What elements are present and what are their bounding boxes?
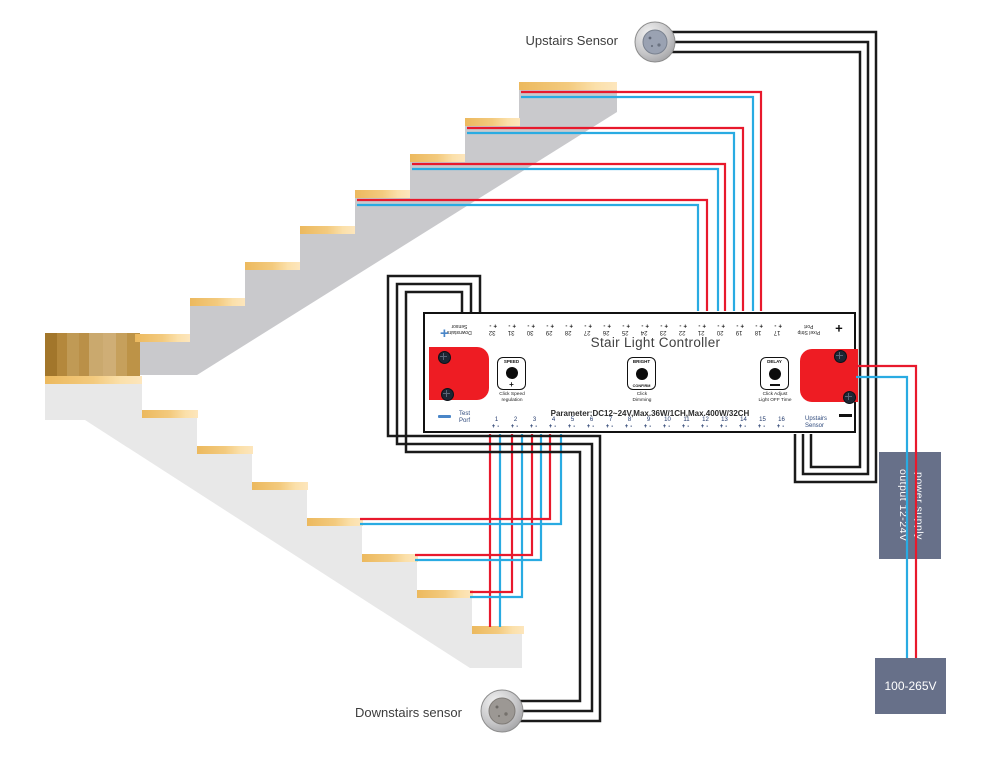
terminal-cell: 28+- [559, 321, 578, 335]
wire-lower-step2-negative [470, 434, 522, 597]
bottom-terminal-strip: 1+-2+-3+-4+-5+-6+-7+-8+-9+-10+-11+-12+-1… [487, 417, 791, 431]
terminal-number: 24 [635, 328, 654, 335]
terminal-polarity-marks: +- [540, 321, 559, 328]
terminal-number: 17 [768, 328, 787, 335]
terminal-number: 32 [483, 328, 502, 335]
terminal-cell: 29+- [540, 321, 559, 335]
terminal-number: 26 [597, 328, 616, 335]
terminal-polarity-marks: +- [753, 424, 772, 431]
stair-tread [519, 82, 617, 90]
upstairs-sensor-label: Upstairs Sensor [500, 33, 618, 48]
terminal-cell: 20+- [711, 321, 730, 335]
terminal-cell: 19+- [730, 321, 749, 335]
terminal-number: 15 [753, 417, 772, 424]
screw-icon [843, 391, 856, 404]
terminal-number: 3 [525, 417, 544, 424]
stair-tread [355, 190, 410, 198]
terminal-polarity-marks: +- [734, 424, 753, 431]
terminal-polarity-marks: +- [563, 424, 582, 431]
terminal-number: 28 [559, 328, 578, 335]
downstairs-sensor-port-label: Downstairs Sensor [447, 323, 472, 335]
top-terminal-cells: 17+-18+-19+-20+-21+-22+-23+-24+-25+-26+-… [483, 321, 787, 335]
delay-knob-icon [769, 368, 781, 380]
terminal-cell: 3+- [525, 417, 544, 431]
delay-minus-mark [770, 384, 780, 387]
terminal-polarity-marks: +- [582, 424, 601, 431]
terminal-cell: 11+- [677, 417, 696, 431]
terminal-number: 2 [506, 417, 525, 424]
terminal-cell: 6+- [582, 417, 601, 431]
terminal-polarity-marks: +- [521, 321, 540, 328]
terminal-cell: 10+- [658, 417, 677, 431]
terminal-cell: 30+- [521, 321, 540, 335]
terminal-cell: 17+- [768, 321, 787, 335]
screw-icon [438, 351, 451, 364]
terminal-number: 25 [616, 328, 635, 335]
terminal-polarity-marks: +- [711, 321, 730, 328]
speed-button: SPEED + [497, 357, 526, 390]
terminal-polarity-marks: +- [483, 321, 502, 328]
stair-tread [362, 554, 418, 562]
terminal-number: 30 [521, 328, 540, 335]
downstairs-sensor [481, 690, 523, 732]
terminal-polarity-marks: +- [730, 321, 749, 328]
terminal-polarity-marks: +- [677, 424, 696, 431]
downstairs-sensor-connector [429, 347, 489, 400]
bright-knob-icon [636, 368, 648, 380]
terminal-number: 27 [578, 328, 597, 335]
terminal-cell: 1+- [487, 417, 506, 431]
terminal-cell: 27+- [578, 321, 597, 335]
terminal-number: 1 [487, 417, 506, 424]
terminal-cell: 9+- [639, 417, 658, 431]
speed-button-label: SPEED [504, 359, 519, 364]
top-terminal-strip: + Pixel Strip Port 17+-18+-19+-20+-21+-2… [447, 316, 847, 335]
power-supply-box: power supply output 12-24V [879, 452, 941, 559]
stair-light-wiring-diagram: { "colors": { "wire_red": "#e8192c", "wi… [0, 0, 989, 767]
pixel-strip-port-label: Pixel Strip Port [798, 323, 821, 335]
stair-tread [472, 626, 524, 634]
terminal-polarity-marks: +- [768, 321, 787, 328]
terminal-number: 4 [544, 417, 563, 424]
terminal-number: 7 [601, 417, 620, 424]
terminal-cell: 5+- [563, 417, 582, 431]
terminal-number: 11 [677, 417, 696, 424]
power-supply-label-line2: output 12-24V [897, 469, 909, 541]
terminal-number: 13 [715, 417, 734, 424]
terminal-number: 19 [730, 328, 749, 335]
delay-caption: Click Adjust Light OFF Time [743, 392, 807, 404]
stair-tread [190, 298, 245, 306]
terminal-polarity-marks: +- [715, 424, 734, 431]
terminal-polarity-marks: +- [772, 424, 791, 431]
terminal-polarity-marks: +- [578, 321, 597, 328]
screw-icon [834, 350, 847, 363]
terminal-number: 20 [711, 328, 730, 335]
terminal-cell: 8+- [620, 417, 639, 431]
stair-tread [197, 446, 253, 454]
delay-button: DELAY [760, 357, 789, 390]
terminal-polarity-marks: +- [673, 321, 692, 328]
power-supply-label-line1: power supply [913, 472, 925, 540]
downstairs-sensor-label: Downstairs sensor [355, 705, 462, 720]
stair-tread [252, 482, 308, 490]
terminal-polarity-marks: +- [506, 424, 525, 431]
terminal-polarity-marks: +- [635, 321, 654, 328]
terminal-number: 22 [673, 328, 692, 335]
terminal-cell: 4+- [544, 417, 563, 431]
terminal-polarity-marks: +- [658, 424, 677, 431]
bright-caption: Click Dimming [613, 392, 671, 404]
stair-tread [245, 262, 300, 270]
terminal-cell: 25+- [616, 321, 635, 335]
terminal-number: 5 [563, 417, 582, 424]
terminal-number: 16 [772, 417, 791, 424]
terminal-cell: 13+- [715, 417, 734, 431]
terminal-polarity-marks: +- [616, 321, 635, 328]
terminal-cell: 24+- [635, 321, 654, 335]
terminal-number: 14 [734, 417, 753, 424]
upstairs-port-minus-mark [839, 414, 852, 417]
stair-tread [142, 410, 198, 418]
terminal-cell: 14+- [734, 417, 753, 431]
landing-tread [45, 376, 142, 384]
bright-button: BRIGHT CONFIRM [627, 357, 656, 390]
mains-voltage-label: 100-265V [884, 679, 936, 693]
terminal-polarity-marks: +- [487, 424, 506, 431]
terminal-polarity-marks: +- [749, 321, 768, 328]
bright-button-label: BRIGHT [633, 359, 650, 364]
terminal-cell: 26+- [597, 321, 616, 335]
wire-lower-step4-negative [360, 434, 561, 524]
terminal-cell: 22+- [673, 321, 692, 335]
terminal-polarity-marks: +- [654, 321, 673, 328]
stair-tread [300, 226, 355, 234]
terminal-number: 18 [749, 328, 768, 335]
test-port-label: Test Porf [459, 411, 470, 425]
terminal-polarity-marks: +- [620, 424, 639, 431]
landing-platform [45, 333, 142, 384]
terminal-number: 29 [540, 328, 559, 335]
terminal-number: 31 [502, 328, 521, 335]
stair-tread [465, 118, 520, 126]
stair-tread [135, 334, 190, 342]
terminal-polarity-marks: +- [544, 424, 563, 431]
terminal-number: 9 [639, 417, 658, 424]
stair-light-controller-board: + Pixel Strip Port 17+-18+-19+-20+-21+-2… [423, 312, 856, 433]
terminal-polarity-marks: +- [601, 424, 620, 431]
terminal-polarity-marks: +- [696, 424, 715, 431]
pixel-strip-plus-mark: + [831, 321, 847, 335]
terminal-cell: 15+- [753, 417, 772, 431]
terminal-cell: 16+- [772, 417, 791, 431]
terminal-cell: 7+- [601, 417, 620, 431]
terminal-number: 8 [620, 417, 639, 424]
controller-title: Stair Light Controller [461, 335, 850, 350]
terminal-cell: 32+- [483, 321, 502, 335]
terminal-polarity-marks: +- [502, 321, 521, 328]
speed-caption: Click Speed regulation [483, 392, 541, 404]
speed-knob-icon [506, 367, 518, 379]
terminal-number: 10 [658, 417, 677, 424]
terminal-polarity-marks: +- [597, 321, 616, 328]
terminal-cell: 12+- [696, 417, 715, 431]
terminal-polarity-marks: +- [692, 321, 711, 328]
terminal-polarity-marks: +- [639, 424, 658, 431]
terminal-cell: 18+- [749, 321, 768, 335]
test-port-minus-mark [438, 415, 451, 418]
confirm-label: CONFIRM [633, 384, 651, 388]
terminal-cell: 31+- [502, 321, 521, 335]
terminal-number: 12 [696, 417, 715, 424]
terminal-cell: 23+- [654, 321, 673, 335]
upstairs-sensor [635, 22, 675, 62]
terminal-number: 21 [692, 328, 711, 335]
downstairs-plus-mark: + [440, 325, 449, 342]
terminal-number: 23 [654, 328, 673, 335]
mains-voltage-box: 100-265V [875, 658, 946, 714]
terminal-cell: 2+- [506, 417, 525, 431]
terminal-polarity-marks: +- [525, 424, 544, 431]
terminal-cell: 21+- [692, 321, 711, 335]
delay-button-label: DELAY [767, 359, 782, 364]
upstairs-port-label: Upstairs Sensor [805, 416, 827, 430]
speed-plus-mark: + [509, 382, 514, 388]
screw-icon [441, 388, 454, 401]
terminal-polarity-marks: +- [559, 321, 578, 328]
stair-tread [410, 154, 465, 162]
terminal-number: 6 [582, 417, 601, 424]
stair-tread [417, 590, 473, 598]
stair-tread [307, 518, 363, 526]
upstairs-sensor-connector [800, 349, 858, 402]
